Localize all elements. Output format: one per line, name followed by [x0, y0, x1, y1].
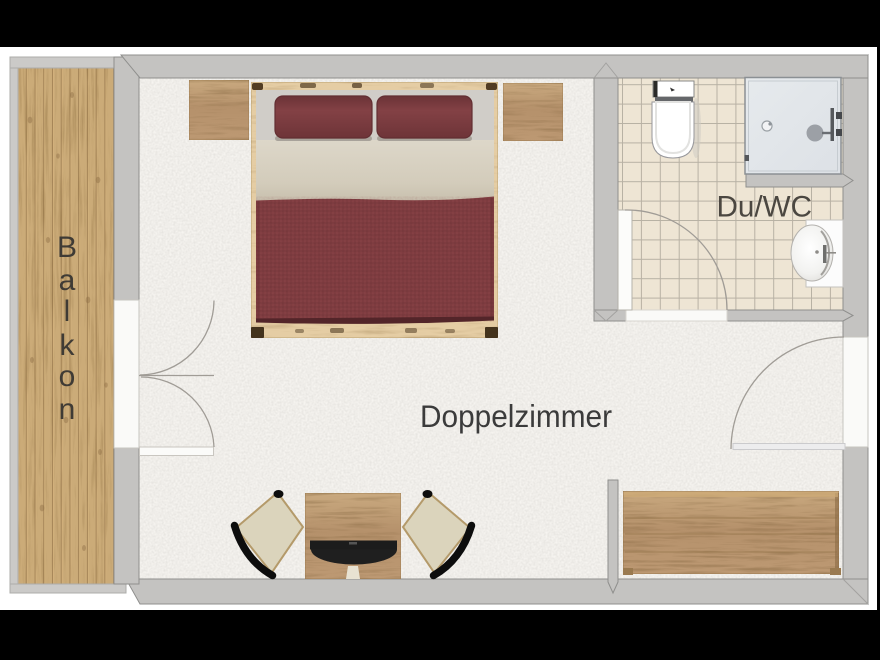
svg-text:o: o [59, 360, 76, 393]
svg-text:B: B [57, 231, 77, 264]
svg-text:Doppelzimmer: Doppelzimmer [420, 398, 612, 434]
svg-text:l: l [64, 295, 71, 328]
svg-text:k: k [60, 329, 76, 362]
svg-text:Du/WC: Du/WC [717, 191, 813, 224]
svg-text:a: a [59, 264, 76, 297]
svg-text:n: n [59, 393, 76, 426]
